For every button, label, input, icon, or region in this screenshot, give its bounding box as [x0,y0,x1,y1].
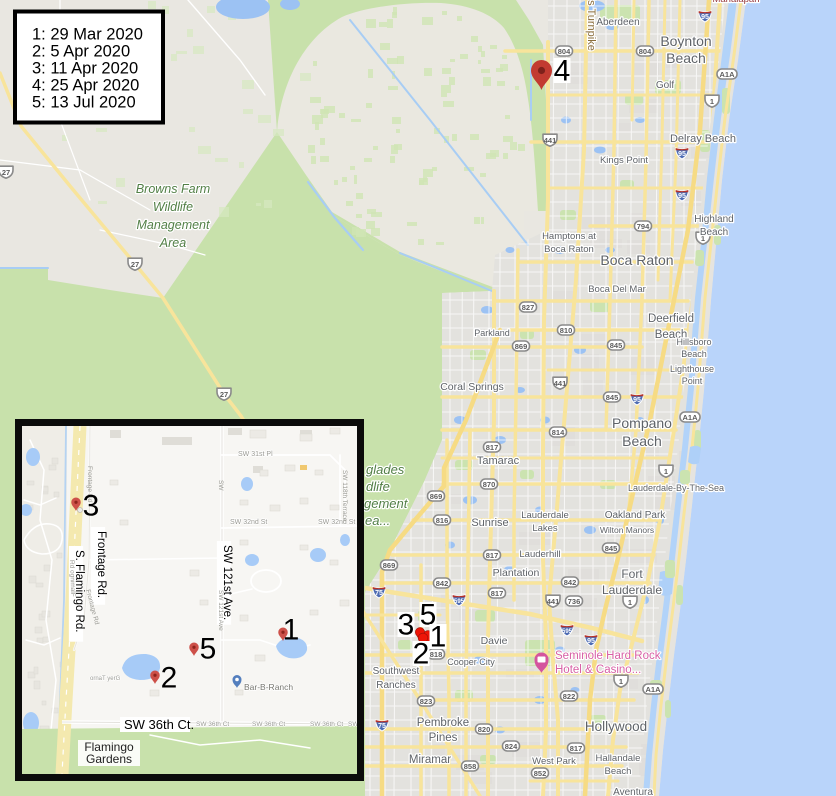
svg-text:Sunrise: Sunrise [471,517,508,529]
svg-text:Beach: Beach [700,227,728,238]
svg-text:Davie: Davie [481,635,508,647]
svg-text:Tamarac: Tamarac [477,455,520,467]
svg-text:1: 1 [430,621,447,654]
svg-text:95: 95 [678,151,686,158]
svg-text:A1A: A1A [719,70,735,79]
svg-text:5: 5 [200,633,217,666]
svg-text:75: 75 [378,723,386,730]
svg-text:27: 27 [220,390,228,399]
svg-text:Lauderhill: Lauderhill [519,549,560,560]
svg-text:845: 845 [606,393,619,402]
svg-text:Beach: Beach [605,766,632,777]
svg-text:Point: Point [682,376,703,386]
svg-text:A1A: A1A [645,685,661,694]
svg-text:Lauderdale-By-The-Sea: Lauderdale-By-The-Sea [628,483,724,493]
svg-text:824: 824 [505,742,518,751]
svg-text:441: 441 [547,597,560,606]
svg-text:'s Turnpike: 's Turnpike [585,0,597,51]
svg-text:794: 794 [637,222,650,231]
svg-text:Boca Del Mar: Boca Del Mar [588,284,646,295]
svg-text:Hamptons at: Hamptons at [542,231,596,242]
svg-text:595: 595 [454,599,465,605]
svg-text:West Park: West Park [532,756,576,767]
svg-text:5: 13 Jul 2020: 5: 13 Jul 2020 [32,94,136,112]
svg-text:27: 27 [2,168,10,177]
svg-text:Deerfield: Deerfield [648,313,694,325]
svg-text:A1A: A1A [682,413,698,422]
svg-text:SW 121st Ave: SW 121st Ave [217,590,224,631]
svg-text:Pompano: Pompano [612,415,672,431]
svg-text:736: 736 [568,597,581,606]
svg-text:SW 32nd St: SW 32nd St [230,519,267,526]
svg-text:816: 816 [436,516,449,525]
svg-text:2: 2 [413,638,430,671]
svg-text:4: 4 [554,55,571,88]
svg-text:Hollywood: Hollywood [585,719,647,734]
svg-text:842: 842 [564,578,577,587]
svg-text:SW 36th Ct: SW 36th Ct [310,721,343,728]
svg-text:Area: Area [159,236,186,250]
svg-text:Rd ognimalF: Rd ognimalF [68,560,76,597]
svg-text:SW 36th Ct: SW 36th Ct [252,721,285,728]
svg-text:820: 820 [478,725,491,734]
svg-text:817: 817 [491,589,504,598]
svg-text:SW 36th Ct: SW 36th Ct [196,721,229,728]
svg-text:Wildlife: Wildlife [153,200,193,214]
svg-text:1: 1 [619,677,623,686]
svg-text:SW 118th Terrace: SW 118th Terrace [341,470,348,522]
svg-text:Aventura: Aventura [613,787,653,796]
svg-text:Lauderdale: Lauderdale [602,583,662,597]
svg-text:Boynton: Boynton [660,33,711,49]
svg-text:810: 810 [560,326,573,335]
svg-text:814: 814 [552,428,565,437]
svg-text:441: 441 [544,136,557,145]
svg-text:817: 817 [570,744,583,753]
svg-text:441: 441 [554,379,567,388]
svg-text:Miramar: Miramar [409,754,451,766]
svg-text:SW 32nd St: SW 32nd St [318,519,355,526]
svg-text:Boca Raton: Boca Raton [544,244,594,255]
svg-text:dlife: dlife [366,479,390,494]
svg-text:845: 845 [610,341,623,350]
svg-text:Hillsboro: Hillsboro [676,337,711,347]
svg-text:Oakland Park: Oakland Park [605,510,667,521]
svg-text:827: 827 [522,303,535,312]
svg-text:Hallandale: Hallandale [596,753,641,764]
svg-text:823: 823 [420,697,433,706]
svg-text:858: 858 [464,762,477,771]
svg-text:Fort: Fort [621,567,643,581]
svg-text:SW 31st Pl: SW 31st Pl [238,451,273,458]
svg-text:ornaT yerG: ornaT yerG [90,676,121,682]
svg-text:869: 869 [515,342,528,351]
svg-text:1: 1 [710,97,714,106]
svg-text:glades: glades [366,462,405,477]
svg-text:1: 1 [283,614,300,647]
svg-text:27: 27 [131,260,139,269]
svg-text:Kings Point: Kings Point [600,155,648,166]
svg-text:595: 595 [562,629,573,635]
svg-text:95: 95 [587,638,595,645]
svg-text:Parkland: Parkland [474,328,510,338]
svg-text:845: 845 [605,544,618,553]
svg-text:842: 842 [436,579,449,588]
svg-text:Beach: Beach [681,349,707,359]
svg-text:Lighthouse: Lighthouse [670,364,714,374]
svg-text:Hotel & Casino...: Hotel & Casino... [555,664,641,676]
svg-text:Cooper City: Cooper City [447,657,495,667]
svg-text:2: 5 Apr 2020: 2: 5 Apr 2020 [32,43,130,61]
svg-text:Pines: Pines [429,732,458,744]
svg-text:Manalapan: Manalapan [712,0,759,5]
svg-text:Delray Beach: Delray Beach [670,133,736,145]
svg-text:SW 36th Ct.: SW 36th Ct. [124,717,194,732]
svg-text:804: 804 [639,47,652,56]
svg-text:Ranches: Ranches [376,680,415,691]
svg-text:Boca Raton: Boca Raton [600,252,673,268]
svg-text:817: 817 [486,551,499,560]
svg-text:1: 1 [628,598,632,607]
svg-text:869: 869 [430,492,443,501]
svg-text:Beach: Beach [622,433,662,449]
svg-text:3: 11 Apr 2020: 3: 11 Apr 2020 [32,60,138,78]
svg-text:Lakes: Lakes [532,523,558,534]
svg-text:ea...: ea... [365,513,390,528]
svg-text:Highland: Highland [694,214,733,225]
svg-text:Gardens: Gardens [86,752,132,766]
svg-text:Beach: Beach [666,50,706,66]
svg-text:870: 870 [483,480,496,489]
svg-text:852: 852 [534,769,547,778]
svg-text:Pembroke: Pembroke [417,717,469,729]
svg-text:Frontage Rd.: Frontage Rd. [95,531,107,598]
svg-text:Golf: Golf [656,80,675,91]
svg-text:Coral Springs: Coral Springs [440,381,504,393]
svg-text:75: 75 [375,590,383,597]
svg-text:Seminole Hard Rock: Seminole Hard Rock [555,650,661,662]
svg-text:822: 822 [563,692,576,701]
svg-text:95: 95 [633,397,641,404]
svg-text:Plantation: Plantation [493,567,540,579]
svg-text:Browns Farm: Browns Farm [136,182,210,196]
svg-text:95: 95 [678,193,686,200]
svg-text:Lauderdale: Lauderdale [521,510,569,521]
svg-text:Wilton Manors: Wilton Manors [600,525,654,535]
svg-text:3: 3 [83,490,100,523]
svg-text:Bar-B-Ranch: Bar-B-Ranch [244,682,293,692]
svg-text:Management: Management [137,218,210,232]
svg-text:95: 95 [701,14,709,21]
svg-text:2: 2 [161,662,178,695]
svg-text:Aberdeen: Aberdeen [596,17,639,28]
svg-text:gement: gement [364,496,409,511]
svg-text:4: 25 Apr 2020: 4: 25 Apr 2020 [32,77,139,95]
svg-text:1: 1 [664,467,668,476]
svg-text:869: 869 [383,561,396,570]
svg-text:1: 29 Mar 2020: 1: 29 Mar 2020 [32,26,143,44]
svg-text:817: 817 [486,443,499,452]
svg-text:SW: SW [217,480,224,491]
